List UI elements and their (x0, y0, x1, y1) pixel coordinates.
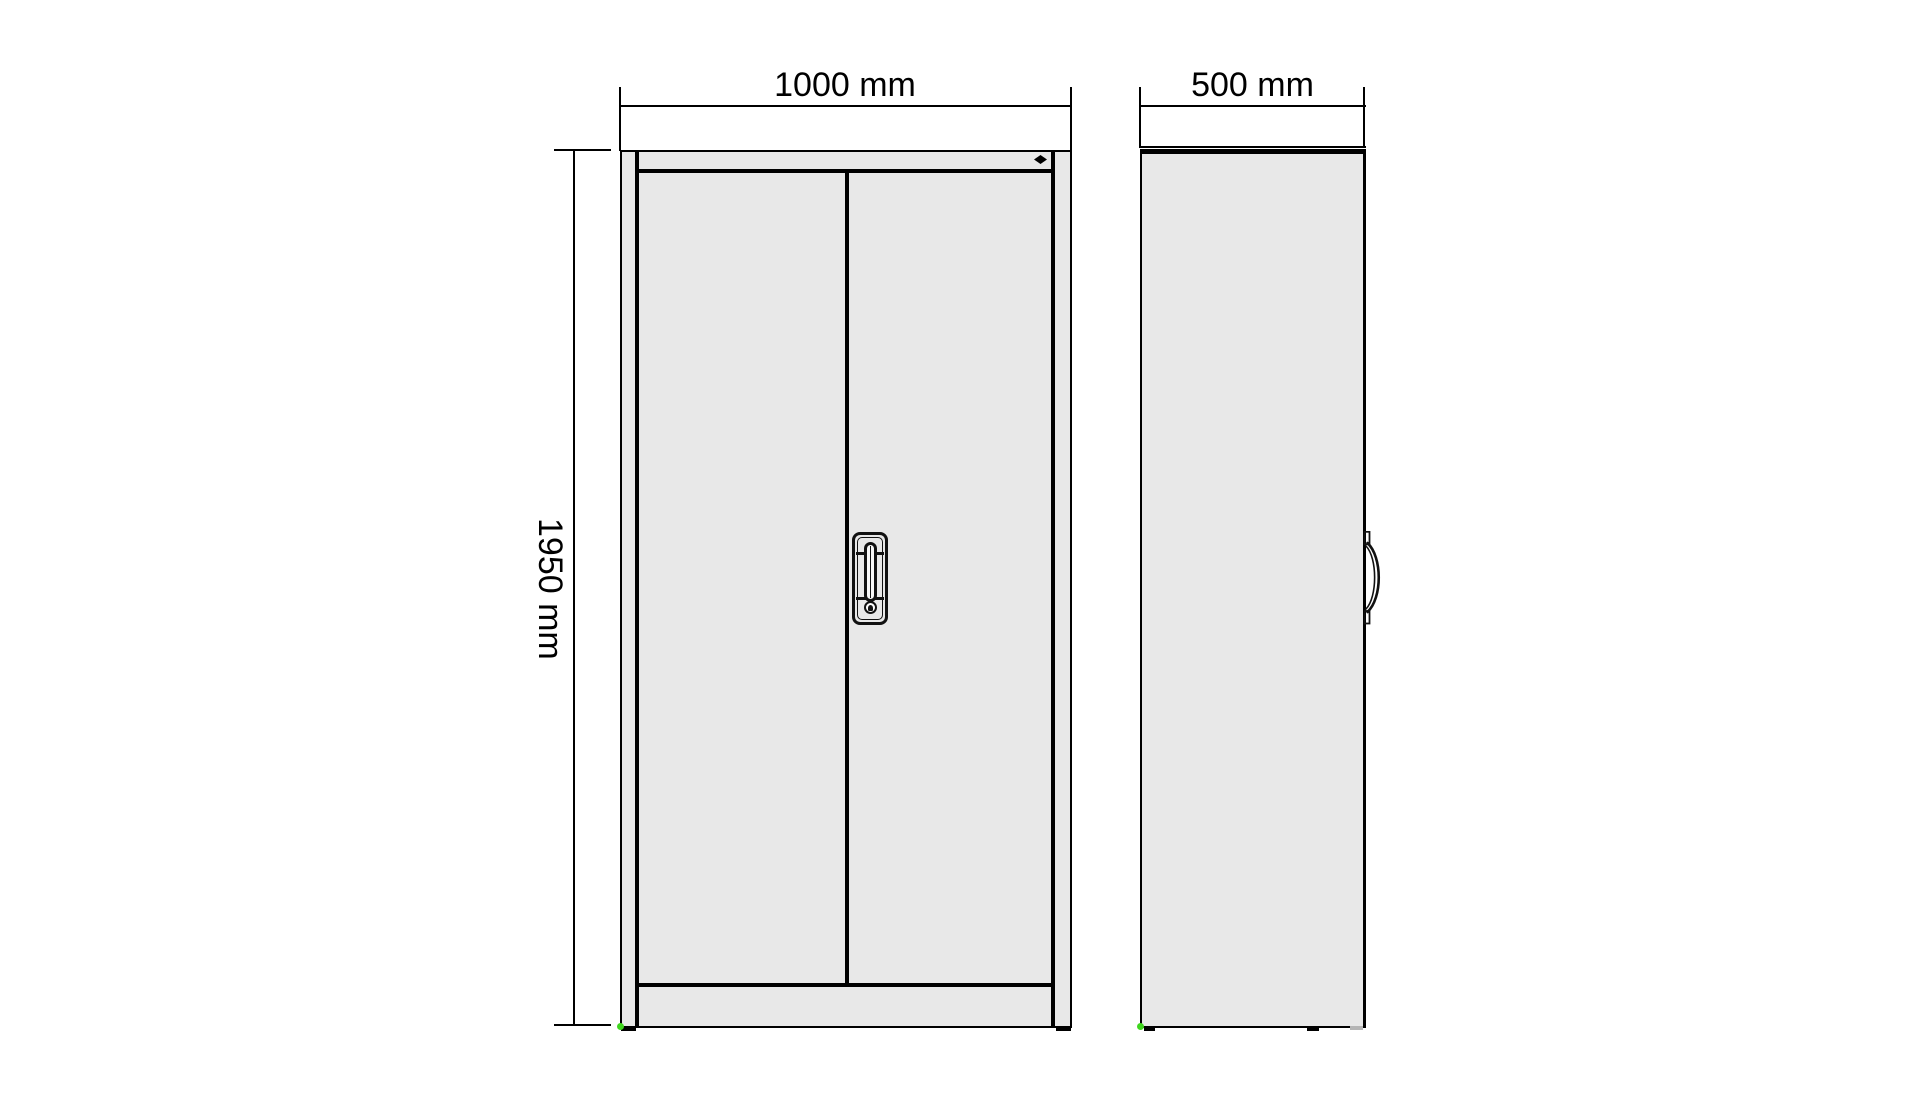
depth-dimension-line (1139, 105, 1366, 107)
door-handle (852, 532, 888, 625)
front-corner-marker (617, 1023, 624, 1030)
width-dimension-line (619, 105, 1072, 107)
handle-grip-bar (864, 542, 877, 602)
side-corner-marker (1137, 1023, 1144, 1030)
height-dimension-label: 1950 mm (532, 518, 568, 658)
width-dimension-tick-right (1070, 87, 1072, 151)
width-dimension-label: 1000 mm (619, 66, 1071, 105)
depth-dimension-tick-right (1363, 87, 1365, 148)
side-foot-left (1144, 1026, 1155, 1031)
width-dimension-tick-left (619, 87, 621, 151)
frame-line-left (635, 152, 639, 1026)
front-view (620, 150, 1072, 1028)
cabinet-drawing-canvas: 1000 mm 500 mm 1950 mm (0, 0, 1920, 1104)
side-view (1140, 149, 1366, 1028)
depth-dimension-tick-left (1139, 87, 1141, 148)
door-bottom-line (635, 983, 1055, 987)
height-dimension-tick-bottom (554, 1024, 611, 1026)
depth-dimension-label: 500 mm (1139, 66, 1366, 105)
side-foot-right (1350, 1026, 1363, 1030)
lock-cylinder (864, 601, 877, 614)
door-split-line (845, 169, 849, 983)
left-door-panel (639, 173, 845, 983)
handle-grip-inner-line (870, 546, 872, 598)
side-foot-middle (1307, 1026, 1319, 1031)
side-view-top-lip (1140, 146, 1366, 148)
keyhole-icon (868, 605, 873, 611)
height-dimension-tick-top (554, 149, 611, 151)
side-handle-profile (1363, 531, 1385, 625)
frame-line-right (1051, 152, 1055, 1026)
front-foot-right (1056, 1026, 1071, 1031)
lock-diamond-icon (1034, 155, 1047, 164)
height-dimension-line (573, 149, 575, 1026)
